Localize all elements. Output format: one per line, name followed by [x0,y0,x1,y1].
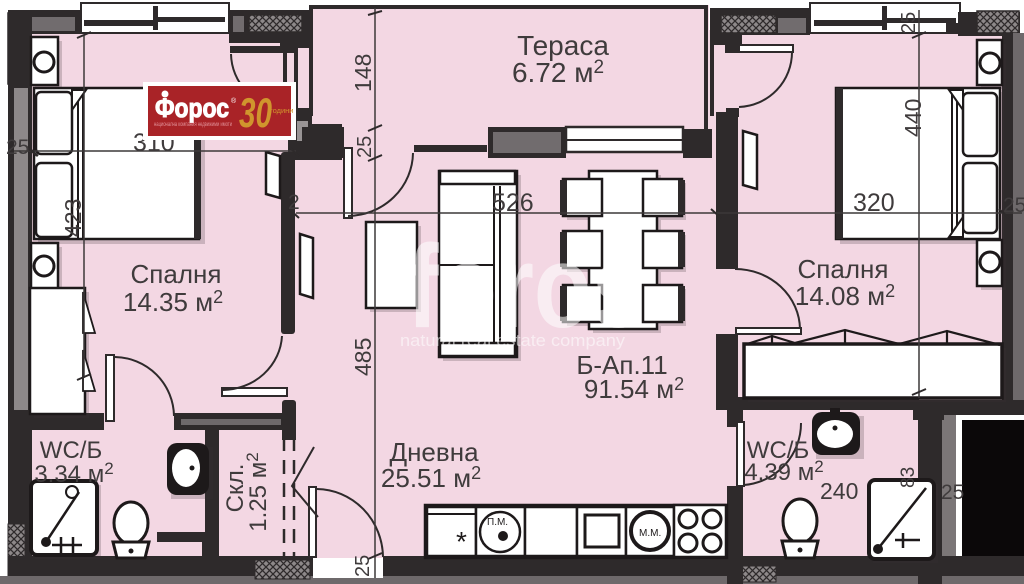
svg-text:2: 2 [288,191,300,214]
svg-text:25: 25 [1003,194,1024,217]
svg-text:440: 440 [900,99,926,137]
svg-text:485: 485 [350,338,376,376]
svg-text:години: години [270,106,293,115]
svg-text:25: 25 [6,136,29,159]
svg-text:6.72 м2: 6.72 м2 [512,57,604,88]
svg-text:240: 240 [820,478,858,504]
svg-text:25: 25 [941,481,964,504]
svg-text:83: 83 [898,467,919,488]
svg-text:Спалня: Спалня [131,259,222,289]
svg-text:148: 148 [350,54,376,92]
svg-text:®: ® [231,97,237,105]
svg-text:Форос: Форос [155,93,229,123]
svg-text:1.25 м2: 1.25 м2 [243,452,272,531]
svg-text:natural real estate company: natural real estate company [400,331,626,350]
svg-text:*: * [456,526,467,557]
svg-text:4.39 м2: 4.39 м2 [744,457,823,486]
svg-text:25: 25 [898,12,920,34]
svg-text:14.08 м2: 14.08 м2 [795,281,895,311]
svg-text:25: 25 [352,555,374,577]
svg-text:14.35 м2: 14.35 м2 [123,287,223,317]
svg-text:национална компания недвижими: национална компания недвижими имоти [154,122,232,128]
svg-text:П.М.: П.М. [487,517,508,528]
svg-text:WC/Б: WC/Б [40,437,102,464]
svg-text:320: 320 [853,189,895,217]
svg-text:91.54 м2: 91.54 м2 [584,374,684,404]
svg-text:25.51 м2: 25.51 м2 [381,463,481,493]
svg-text:30: 30 [239,89,272,136]
svg-text:526: 526 [492,189,534,217]
svg-text:25: 25 [354,136,376,158]
svg-text:423: 423 [60,199,86,237]
svg-text:Спалня: Спалня [798,254,889,284]
svg-text:М.М.: М.М. [639,528,661,539]
svg-text:3.34 м2: 3.34 м2 [34,459,113,488]
